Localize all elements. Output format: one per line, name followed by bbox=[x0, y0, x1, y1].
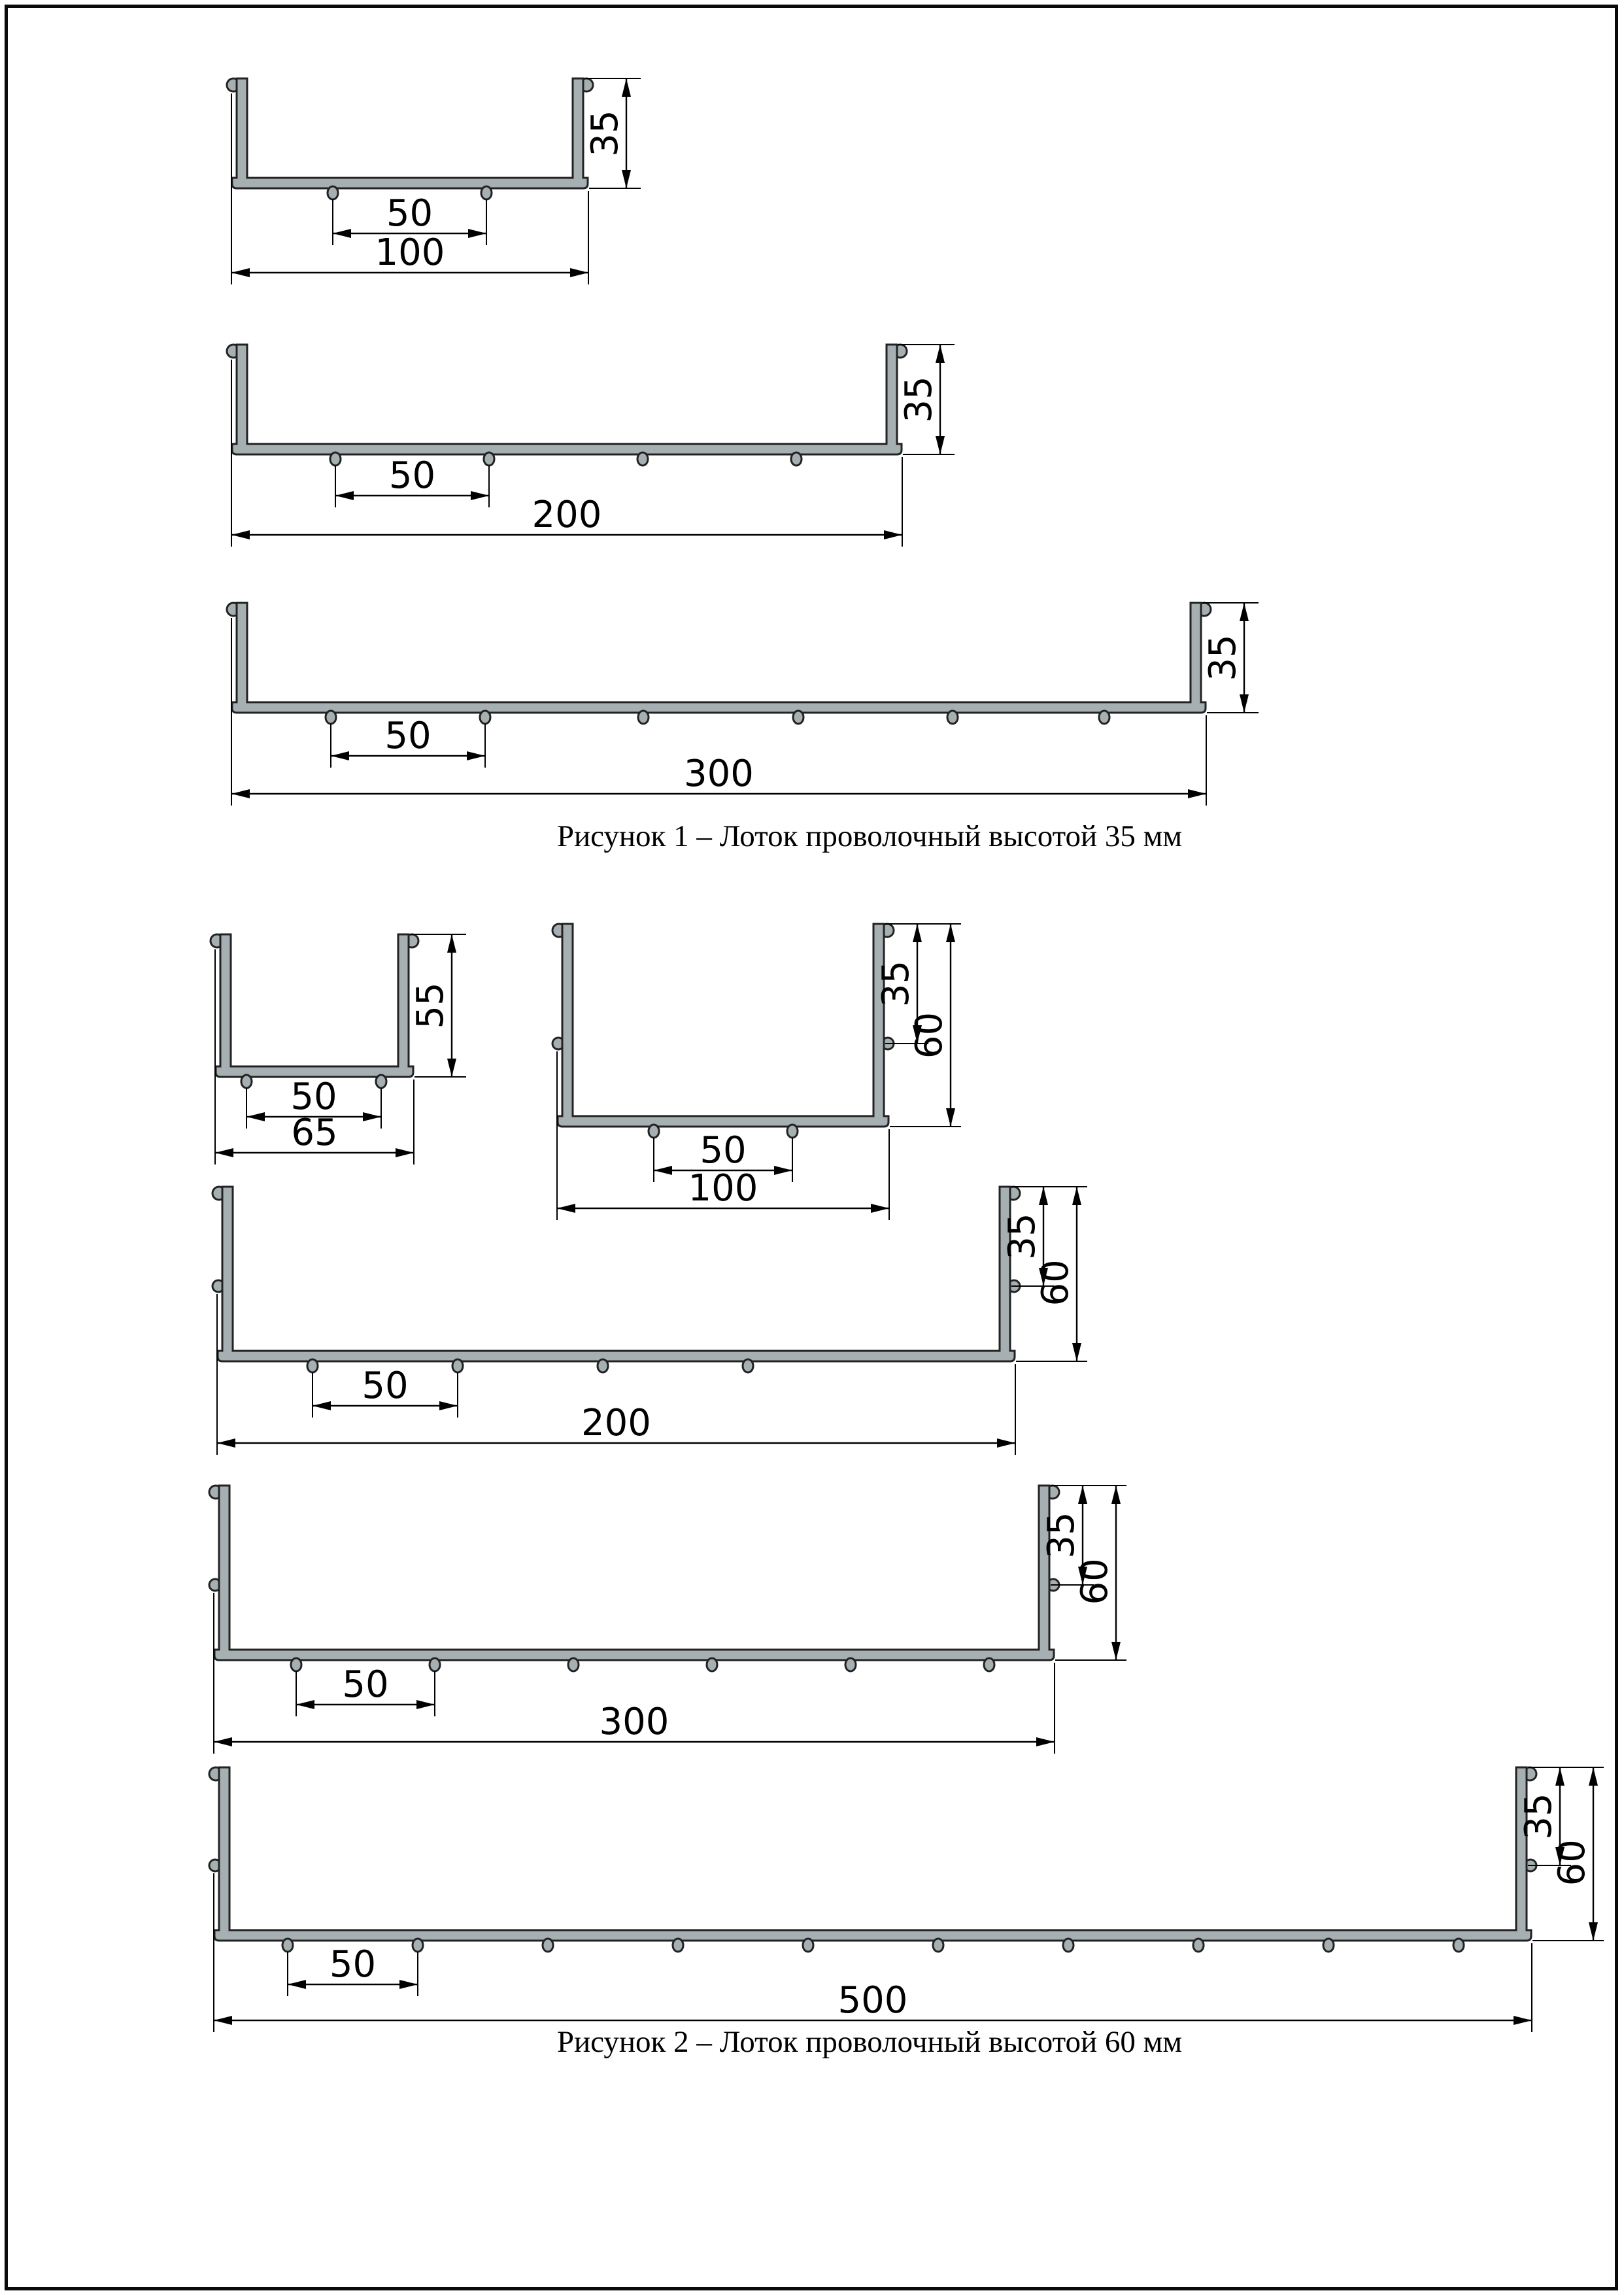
cross-wire bbox=[330, 452, 341, 466]
arrowhead bbox=[439, 1401, 458, 1410]
tray-profile-55-65: 506555 bbox=[191, 918, 497, 1198]
arrowhead bbox=[471, 491, 489, 500]
arrowhead bbox=[936, 345, 945, 363]
arrowhead bbox=[288, 1980, 306, 1989]
height-dimension-label: 35 bbox=[584, 110, 626, 156]
cross-wire bbox=[452, 1359, 463, 1372]
mid-height-dimension-label: 35 bbox=[1040, 1512, 1083, 1558]
tray-body bbox=[558, 924, 888, 1127]
height-dimension-label: 35 bbox=[1202, 634, 1244, 681]
arrowhead bbox=[215, 1148, 233, 1157]
arrowhead bbox=[231, 268, 250, 277]
arrowhead bbox=[946, 924, 955, 942]
tray-body bbox=[218, 1187, 1015, 1361]
arrowhead bbox=[333, 229, 351, 238]
arrowhead bbox=[1514, 2016, 1532, 2025]
spacing-dimension-label: 50 bbox=[384, 715, 431, 757]
mid-height-dimension-label: 35 bbox=[1517, 1793, 1560, 1839]
cross-wire bbox=[568, 1658, 579, 1671]
arrowhead bbox=[468, 229, 486, 238]
width-dimension-label: 200 bbox=[581, 1402, 651, 1444]
arrowhead bbox=[997, 1438, 1015, 1448]
tray-body bbox=[214, 1767, 1531, 1941]
arrowhead bbox=[396, 1148, 414, 1157]
width-dimension-label: 100 bbox=[375, 231, 445, 274]
height-dimension-label: 60 bbox=[908, 1012, 951, 1059]
tray-body bbox=[232, 345, 902, 454]
arrowhead bbox=[447, 1059, 456, 1077]
cross-wire bbox=[637, 452, 648, 466]
figure2-caption: Рисунок 2 – Лоток проволочный высотой 60… bbox=[0, 2024, 1624, 2060]
tray-body bbox=[232, 603, 1206, 713]
tray-profile-60-200: 502003560 bbox=[193, 1170, 1098, 1489]
arrowhead bbox=[217, 1438, 235, 1448]
arrowhead bbox=[1039, 1187, 1048, 1205]
width-dimension-label: 500 bbox=[838, 1979, 908, 2022]
cross-wire bbox=[787, 1125, 798, 1138]
arrowhead bbox=[1188, 789, 1206, 798]
tray-body bbox=[216, 934, 413, 1077]
cross-wire bbox=[543, 1939, 553, 1952]
width-dimension-label: 300 bbox=[600, 1701, 669, 1743]
cross-wire bbox=[947, 711, 958, 724]
figure1-caption: Рисунок 1 – Лоток проволочный высотой 35… bbox=[0, 819, 1624, 854]
cross-wire bbox=[480, 711, 490, 724]
arrowhead bbox=[231, 530, 250, 539]
tray-profile-60-500: 505003560 bbox=[190, 1751, 1615, 2066]
width-dimension-label: 300 bbox=[684, 753, 754, 795]
arrowhead bbox=[1240, 694, 1249, 713]
cross-wire bbox=[484, 452, 494, 466]
tray-body bbox=[232, 78, 588, 188]
cross-wire bbox=[984, 1658, 994, 1671]
arrowhead bbox=[246, 1112, 265, 1121]
cross-wire bbox=[673, 1939, 683, 1952]
technical-drawing-canvas: 5010035502003550300355065555010035605020… bbox=[0, 0, 1624, 2295]
arrowhead bbox=[1589, 1767, 1598, 1786]
arrowhead bbox=[1036, 1737, 1055, 1746]
arrowhead bbox=[570, 268, 588, 277]
arrowhead bbox=[1589, 1922, 1598, 1941]
cross-wire bbox=[793, 711, 804, 724]
arrowhead bbox=[331, 751, 349, 760]
width-dimension-label: 65 bbox=[291, 1112, 337, 1154]
cross-wire bbox=[328, 186, 338, 199]
arrowhead bbox=[399, 1980, 418, 1989]
arrowhead bbox=[1111, 1642, 1121, 1660]
arrowhead bbox=[1111, 1486, 1121, 1504]
arrowhead bbox=[313, 1401, 331, 1410]
height-dimension-label: 55 bbox=[409, 982, 452, 1028]
cross-wire bbox=[1453, 1939, 1464, 1952]
cross-wire bbox=[791, 452, 802, 466]
spacing-dimension-label: 50 bbox=[330, 1943, 376, 1986]
height-dimension-label: 60 bbox=[1034, 1259, 1077, 1306]
tray-profile-35-100: 5010035 bbox=[207, 62, 671, 318]
cross-wire bbox=[803, 1939, 813, 1952]
arrowhead bbox=[1240, 603, 1249, 621]
cross-wire bbox=[1063, 1939, 1074, 1952]
spacing-dimension-label: 50 bbox=[342, 1663, 388, 1706]
spacing-dimension-label: 50 bbox=[389, 454, 435, 497]
width-dimension-label: 200 bbox=[532, 494, 602, 536]
arrowhead bbox=[335, 491, 354, 500]
tray-profile-35-300: 5030035 bbox=[207, 586, 1289, 840]
cross-wire bbox=[430, 1658, 440, 1671]
tray-profile-60-300: 503003560 bbox=[190, 1469, 1138, 1788]
cross-wire bbox=[845, 1658, 856, 1671]
arrowhead bbox=[946, 1108, 955, 1127]
cross-wire bbox=[1193, 1939, 1204, 1952]
height-dimension-label: 60 bbox=[1074, 1558, 1116, 1605]
cross-wire bbox=[291, 1658, 301, 1671]
arrowhead bbox=[622, 170, 631, 188]
spacing-dimension-label: 50 bbox=[700, 1129, 746, 1172]
cross-wire bbox=[707, 1658, 717, 1671]
arrowhead bbox=[913, 924, 922, 942]
mid-height-dimension-label: 35 bbox=[1001, 1213, 1043, 1259]
cross-wire bbox=[638, 711, 649, 724]
cross-wire bbox=[326, 711, 336, 724]
tray-body bbox=[214, 1486, 1054, 1660]
cross-wire bbox=[241, 1075, 252, 1088]
arrowhead bbox=[363, 1112, 381, 1121]
arrowhead bbox=[231, 789, 250, 798]
cross-wire bbox=[376, 1075, 386, 1088]
arrowhead bbox=[1555, 1767, 1565, 1786]
cross-wire bbox=[481, 186, 492, 199]
spacing-dimension-label: 50 bbox=[386, 192, 433, 235]
arrowhead bbox=[936, 436, 945, 454]
arrowhead bbox=[622, 78, 631, 97]
spacing-dimension-label: 50 bbox=[362, 1365, 408, 1407]
arrowhead bbox=[214, 2016, 232, 2025]
arrowhead bbox=[296, 1700, 314, 1709]
arrowhead bbox=[884, 530, 902, 539]
arrowhead bbox=[214, 1737, 232, 1746]
cross-wire bbox=[743, 1359, 753, 1372]
arrowhead bbox=[416, 1700, 435, 1709]
mid-height-dimension-label: 35 bbox=[875, 960, 917, 1007]
cross-wire bbox=[933, 1939, 943, 1952]
cross-wire bbox=[598, 1359, 608, 1372]
arrowhead bbox=[1072, 1187, 1081, 1205]
cross-wire bbox=[1099, 711, 1109, 724]
tray-profile-35-200: 5020035 bbox=[207, 328, 985, 581]
arrowhead bbox=[1072, 1343, 1081, 1361]
arrowhead bbox=[447, 934, 456, 953]
height-dimension-label: 35 bbox=[898, 376, 940, 422]
arrowhead bbox=[467, 751, 485, 760]
cross-wire bbox=[282, 1939, 293, 1952]
height-dimension-label: 60 bbox=[1551, 1839, 1593, 1886]
cross-wire bbox=[1323, 1939, 1334, 1952]
cross-wire bbox=[649, 1125, 659, 1138]
cross-wire bbox=[307, 1359, 318, 1372]
cross-wire bbox=[413, 1939, 423, 1952]
arrowhead bbox=[1078, 1486, 1087, 1504]
